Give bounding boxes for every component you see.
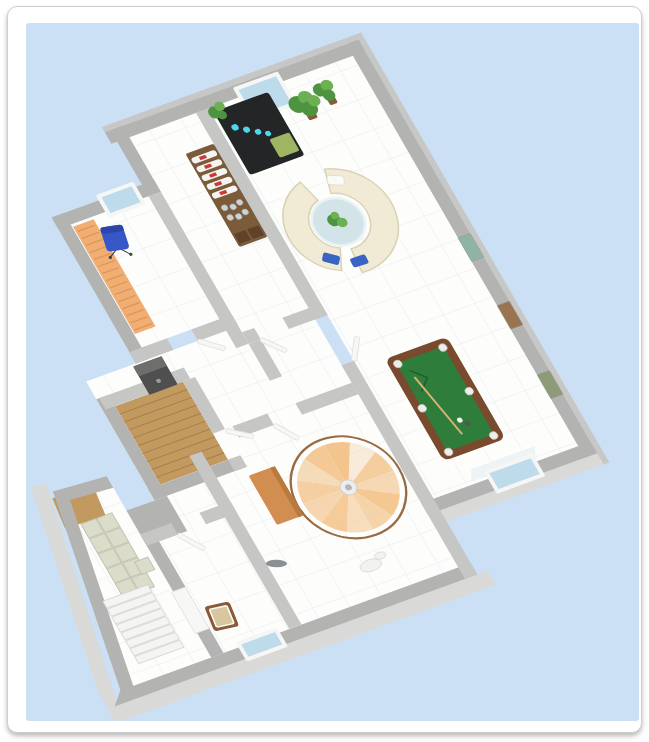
tiled-floors xyxy=(26,56,615,686)
floor-plan-svg xyxy=(26,24,639,721)
plan-background xyxy=(26,23,639,721)
white-pillow xyxy=(327,175,345,185)
page: { "scene": { "description": "3D floor pl… xyxy=(0,0,649,742)
canvas-card xyxy=(7,6,642,733)
floor-plan xyxy=(26,24,639,721)
